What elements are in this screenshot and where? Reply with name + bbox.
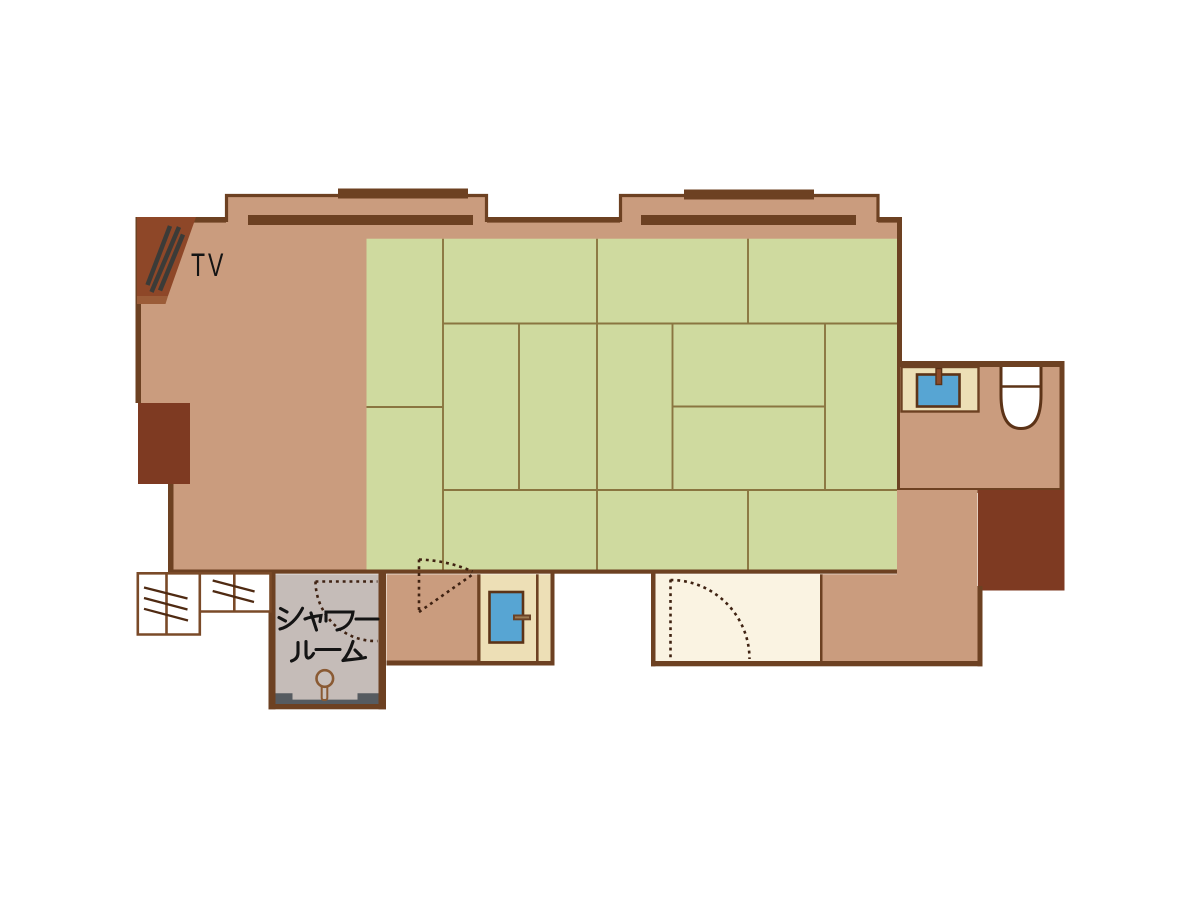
svg-text:TV: TV [191,247,226,283]
